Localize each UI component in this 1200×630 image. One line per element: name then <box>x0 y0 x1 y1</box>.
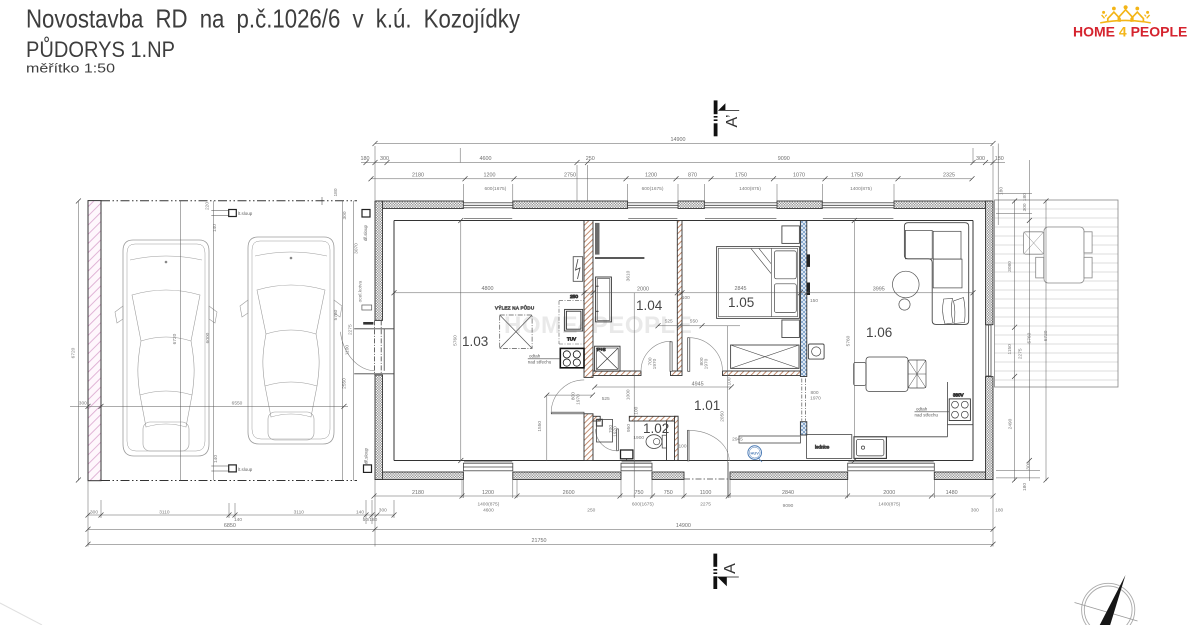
svg-text:5760: 5760 <box>453 335 459 346</box>
svg-text:140: 140 <box>234 517 242 523</box>
svg-text:2750: 2750 <box>564 173 576 179</box>
svg-text:1970: 1970 <box>810 396 821 402</box>
svg-text:380V: 380V <box>953 393 964 398</box>
svg-text:1970: 1970 <box>652 358 658 369</box>
svg-text:2275: 2275 <box>1017 348 1023 359</box>
svg-text:600(1675): 600(1675) <box>632 501 654 507</box>
svg-text:300: 300 <box>380 156 389 162</box>
svg-text:3110: 3110 <box>159 509 170 515</box>
svg-text:2325: 2325 <box>943 173 955 179</box>
svg-text:odtah: odtah <box>529 354 541 359</box>
svg-text:1.05: 1.05 <box>728 295 754 310</box>
svg-text:750: 750 <box>635 490 644 496</box>
svg-text:300: 300 <box>342 211 348 219</box>
svg-text:525: 525 <box>602 396 610 402</box>
svg-text:750: 750 <box>664 490 673 496</box>
svg-text:3995: 3995 <box>873 287 885 293</box>
svg-text:21750: 21750 <box>532 538 547 544</box>
svg-text:1480: 1480 <box>946 490 958 496</box>
svg-text:50/180: 50/180 <box>363 517 378 523</box>
svg-text:250: 250 <box>586 156 595 162</box>
svg-text:1400(875): 1400(875) <box>850 186 872 192</box>
svg-text:1200: 1200 <box>482 490 494 496</box>
svg-text:6000: 6000 <box>205 332 211 343</box>
svg-text:4800: 4800 <box>482 286 494 292</box>
svg-text:lt.sloup: lt.sloup <box>238 211 253 216</box>
svg-text:150: 150 <box>810 298 818 304</box>
svg-text:1.04: 1.04 <box>636 298 663 313</box>
svg-text:300: 300 <box>79 401 87 407</box>
svg-text:250: 250 <box>587 508 595 514</box>
svg-text:180: 180 <box>361 156 370 162</box>
svg-text:180: 180 <box>333 188 339 196</box>
svg-text:2490: 2490 <box>1008 418 1014 429</box>
svg-text:A: A <box>722 563 739 574</box>
svg-text:A’: A’ <box>724 114 741 127</box>
svg-text:300: 300 <box>379 508 387 514</box>
svg-text:1070: 1070 <box>793 173 805 179</box>
svg-text:100: 100 <box>678 444 686 450</box>
svg-text:1200: 1200 <box>484 173 496 179</box>
svg-text:220: 220 <box>205 202 211 210</box>
svg-text:HUV: HUV <box>750 450 759 455</box>
svg-text:1400(875): 1400(875) <box>878 501 900 507</box>
svg-text:180: 180 <box>999 187 1005 195</box>
svg-text:140: 140 <box>356 509 364 515</box>
svg-text:1750: 1750 <box>851 173 863 179</box>
svg-text:1.06: 1.06 <box>866 325 892 340</box>
svg-text:180: 180 <box>995 508 1003 514</box>
svg-text:2845: 2845 <box>735 286 747 292</box>
svg-text:550: 550 <box>690 319 698 325</box>
svg-text:1.01: 1.01 <box>694 398 720 413</box>
svg-text:800: 800 <box>810 390 818 396</box>
svg-text:1970: 1970 <box>576 394 582 405</box>
svg-text:HOME 4 PEOPLE: HOME 4 PEOPLE <box>1073 23 1187 39</box>
svg-text:2275: 2275 <box>700 501 711 507</box>
svg-text:2000: 2000 <box>883 490 895 496</box>
svg-text:5760: 5760 <box>333 309 339 320</box>
svg-text:1200: 1200 <box>645 173 657 179</box>
svg-text:4600: 4600 <box>480 156 492 162</box>
svg-text:300: 300 <box>1022 203 1028 211</box>
svg-text:2275: 2275 <box>348 324 354 335</box>
svg-text:dř.sloup: dř.sloup <box>364 447 369 464</box>
svg-text:100: 100 <box>682 295 690 301</box>
svg-text:odtah: odtah <box>916 407 928 412</box>
svg-text:9090: 9090 <box>778 156 790 162</box>
svg-text:1150: 1150 <box>1007 344 1013 355</box>
svg-text:6550: 6550 <box>232 401 243 407</box>
svg-text:180: 180 <box>1022 483 1028 491</box>
svg-text:300: 300 <box>976 156 985 162</box>
svg-text:2180: 2180 <box>412 173 424 179</box>
svg-text:dř.sloup: dř.sloup <box>363 224 368 241</box>
svg-text:1.03: 1.03 <box>462 334 488 349</box>
svg-text:6720: 6720 <box>71 347 77 358</box>
svg-text:3080: 3080 <box>1007 261 1013 272</box>
svg-text:100: 100 <box>633 406 639 414</box>
svg-text:1.02: 1.02 <box>643 421 669 436</box>
svg-text:14900: 14900 <box>671 137 686 143</box>
svg-text:6850: 6850 <box>224 523 236 529</box>
svg-text:100: 100 <box>727 377 733 385</box>
svg-text:lt.sloup: lt.sloup <box>238 467 253 472</box>
svg-text:lednice: lednice <box>815 445 830 450</box>
svg-text:6720: 6720 <box>172 333 178 344</box>
svg-text:1750: 1750 <box>735 173 747 179</box>
svg-text:180: 180 <box>995 156 1004 162</box>
svg-text:1900: 1900 <box>633 435 644 441</box>
svg-text:2180: 2180 <box>412 490 424 496</box>
svg-text:6720: 6720 <box>1043 330 1049 341</box>
svg-text:300: 300 <box>971 508 979 514</box>
svg-text:ocel.kotva: ocel.kotva <box>358 280 364 302</box>
svg-text:2050: 2050 <box>719 411 725 422</box>
svg-text:870: 870 <box>688 173 697 179</box>
svg-text:2600: 2600 <box>563 490 575 496</box>
svg-text:1400(875): 1400(875) <box>739 186 761 192</box>
svg-text:14900: 14900 <box>676 523 691 529</box>
svg-text:1400(875): 1400(875) <box>477 501 499 507</box>
svg-text:1100: 1100 <box>345 345 351 356</box>
svg-text:250: 250 <box>570 294 578 300</box>
svg-text:1100: 1100 <box>700 490 712 496</box>
svg-text:1000: 1000 <box>625 389 631 400</box>
svg-text:3110: 3110 <box>294 509 305 515</box>
svg-text:2000: 2000 <box>637 287 649 293</box>
svg-text:300: 300 <box>90 509 98 515</box>
svg-text:3610: 3610 <box>625 270 631 281</box>
svg-text:P+S: P+S <box>597 347 606 352</box>
svg-text:4945: 4945 <box>692 381 704 387</box>
svg-text:měřítko 1:50: měřítko 1:50 <box>26 61 115 76</box>
svg-text:140: 140 <box>212 224 218 232</box>
svg-text:140: 140 <box>213 455 219 463</box>
svg-text:525: 525 <box>665 319 673 325</box>
svg-text:180: 180 <box>1022 193 1028 201</box>
svg-text:950: 950 <box>626 424 632 432</box>
svg-text:600(1675): 600(1675) <box>642 186 664 192</box>
svg-text:nad střechu: nad střechu <box>915 413 939 418</box>
svg-text:2550: 2550 <box>342 378 348 389</box>
svg-text:9090: 9090 <box>783 503 794 509</box>
svg-text:1970: 1970 <box>613 426 619 437</box>
svg-text:5760: 5760 <box>1026 332 1032 343</box>
svg-text:300: 300 <box>1026 461 1032 469</box>
svg-text:PŮDORYS 1.NP: PŮDORYS 1.NP <box>26 37 175 62</box>
svg-text:5760: 5760 <box>845 335 851 346</box>
svg-text:3070: 3070 <box>354 243 360 254</box>
svg-text:2840: 2840 <box>782 490 794 496</box>
svg-text:1970: 1970 <box>704 358 710 369</box>
svg-text:2945: 2945 <box>732 437 743 443</box>
svg-text:600(1675): 600(1675) <box>484 186 506 192</box>
svg-text:1550: 1550 <box>537 421 543 432</box>
svg-text:4600: 4600 <box>483 508 494 514</box>
svg-text:Novostavba RD na p.č.1026/6 v: Novostavba RD na p.č.1026/6 v k.ú. Kozoj… <box>26 4 520 34</box>
svg-text:VÝLEZ NA PŮDU: VÝLEZ NA PŮDU <box>495 305 534 311</box>
svg-text:nad střechu: nad střechu <box>528 360 552 365</box>
svg-text:TUV: TUV <box>567 337 576 342</box>
